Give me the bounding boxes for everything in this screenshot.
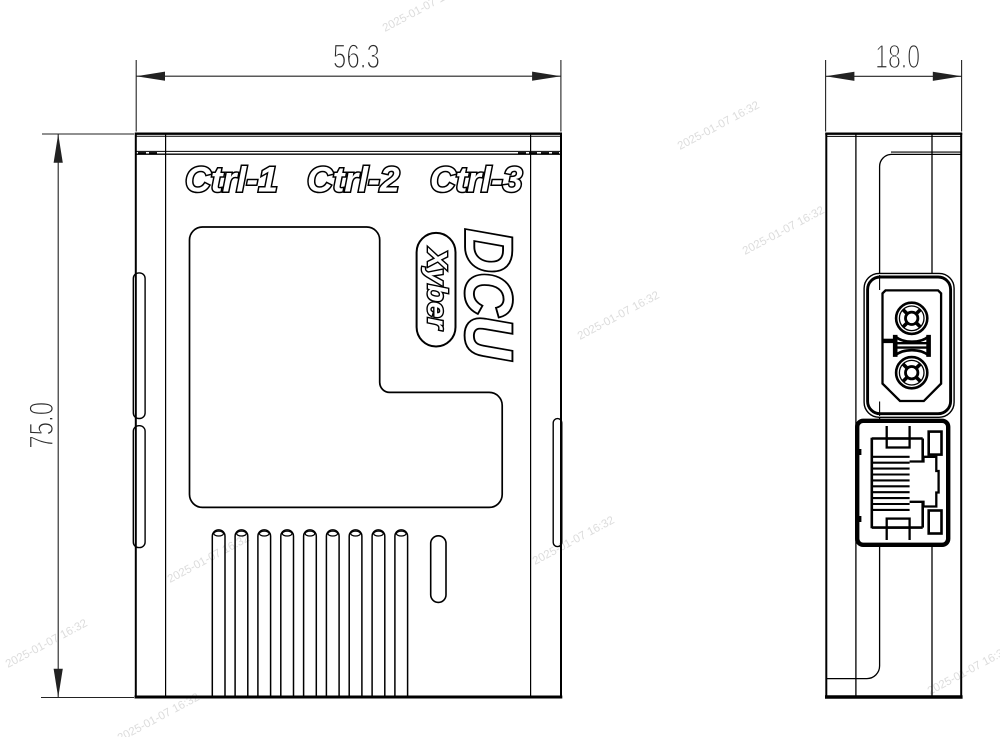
svg-text:Ctrl-3: Ctrl-3 [430, 160, 523, 200]
svg-text:18.0: 18.0 [875, 38, 920, 75]
svg-text:Xyber: Xyber [422, 247, 453, 331]
svg-text:56.3: 56.3 [333, 38, 380, 76]
svg-text:Ctrl-2: Ctrl-2 [307, 160, 400, 200]
svg-text:DCU: DCU [452, 229, 526, 361]
svg-text:Ctrl-1: Ctrl-1 [185, 160, 278, 200]
svg-text:75.0: 75.0 [23, 402, 61, 449]
